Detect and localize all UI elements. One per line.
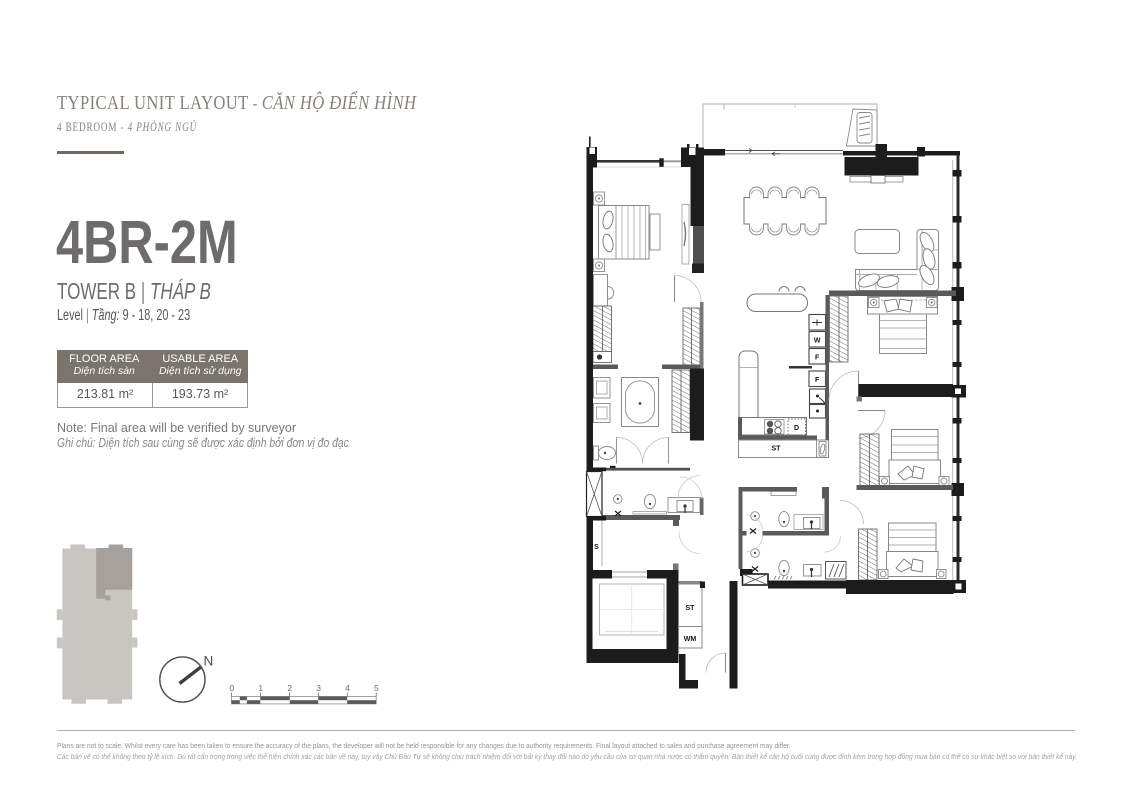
svg-text:ST: ST: [686, 605, 696, 612]
svg-text:4: 4: [345, 683, 350, 693]
svg-text:D: D: [794, 425, 799, 432]
svg-text:WM: WM: [684, 636, 697, 643]
svg-text:F: F: [815, 355, 820, 362]
svg-text:0: 0: [229, 683, 234, 693]
svg-text:N: N: [204, 654, 214, 669]
svg-text:3: 3: [316, 683, 321, 693]
svg-text:S: S: [594, 544, 599, 551]
svg-text:1: 1: [258, 683, 263, 693]
svg-text:5: 5: [374, 683, 379, 693]
svg-text:F: F: [815, 377, 820, 384]
svg-text:W: W: [814, 338, 821, 345]
svg-text:2: 2: [287, 683, 292, 693]
svg-text:ST: ST: [772, 446, 782, 453]
